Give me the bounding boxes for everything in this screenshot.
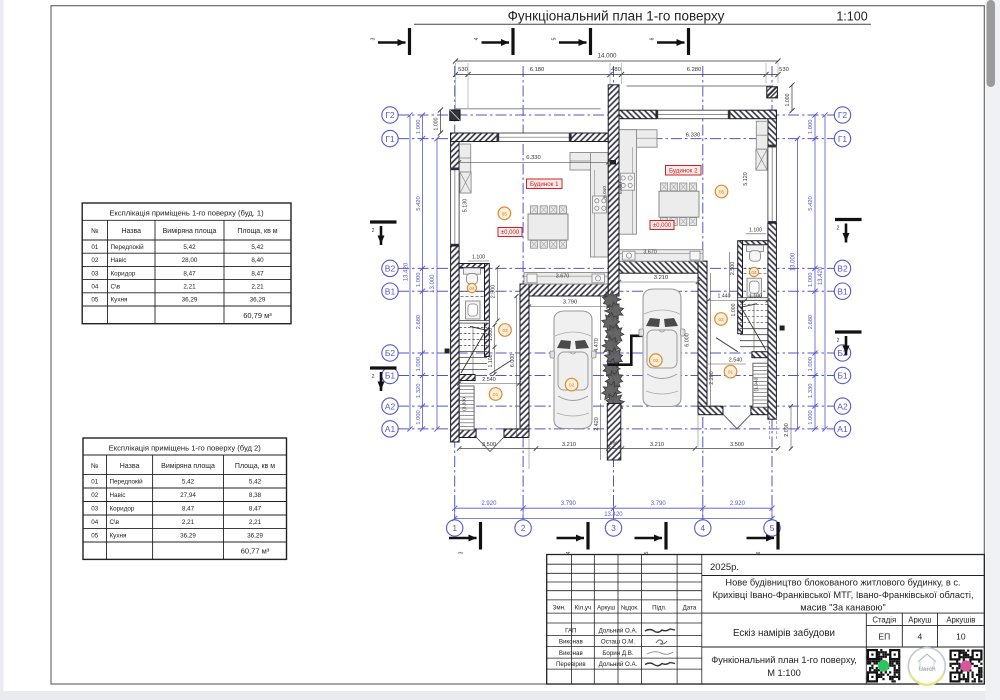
svg-text:05: 05 <box>719 190 725 196</box>
svg-text:2.920: 2.920 <box>730 501 746 507</box>
svg-text:14.000: 14.000 <box>598 53 617 60</box>
svg-text:1.100: 1.100 <box>472 255 485 261</box>
svg-text:С\в: С\в <box>110 519 120 526</box>
svg-text:2.540: 2.540 <box>729 358 743 364</box>
svg-text:1.000: 1.000 <box>808 410 814 425</box>
svg-text:2025р.: 2025р. <box>710 562 739 573</box>
svg-text:5.130: 5.130 <box>463 199 469 213</box>
svg-text:Назва: Назва <box>121 228 141 235</box>
svg-text:3: 3 <box>459 551 465 554</box>
svg-text:36,29: 36,29 <box>247 533 263 540</box>
svg-text:Аркушів: Аркушів <box>946 615 975 624</box>
svg-text:2.200: 2.200 <box>709 371 715 385</box>
svg-text:Г2: Г2 <box>385 110 395 120</box>
svg-text:3.210: 3.210 <box>650 442 664 448</box>
svg-text:6.000: 6.000 <box>510 354 516 368</box>
svg-text:2: 2 <box>372 374 375 380</box>
svg-text:8,47: 8,47 <box>183 270 196 277</box>
svg-text:Кухня: Кухня <box>110 533 127 540</box>
svg-text:Перевірив: Перевірив <box>556 661 586 668</box>
svg-text:5.420: 5.420 <box>416 196 422 211</box>
svg-text:2,21: 2,21 <box>251 284 264 291</box>
svg-text:3.670: 3.670 <box>643 250 657 256</box>
svg-text:1.100: 1.100 <box>749 294 762 300</box>
svg-text:6.330: 6.330 <box>526 155 541 161</box>
svg-text:1.000: 1.000 <box>731 303 737 316</box>
svg-text:6.040: 6.040 <box>618 182 624 194</box>
svg-text:8,47: 8,47 <box>251 270 264 277</box>
svg-text:Площа, кв м: Площа, кв м <box>235 463 275 470</box>
svg-text:Б1: Б1 <box>837 371 848 381</box>
svg-text:Б1: Б1 <box>385 371 396 381</box>
svg-text:Uarch: Uarch <box>918 666 936 673</box>
svg-text:60,79 м³: 60,79 м³ <box>243 311 272 320</box>
svg-text:1.100: 1.100 <box>749 228 762 234</box>
svg-text:6: 6 <box>650 37 656 40</box>
svg-text:Виміряна площа: Виміряна площа <box>163 227 217 235</box>
svg-text:Передпокій: Передпокій <box>110 478 144 486</box>
svg-text:02: 02 <box>91 492 99 499</box>
svg-text:6.000: 6.000 <box>685 333 691 347</box>
svg-text:Нове будівництво блокованого ж: Нове будівництво блокованого житлового б… <box>725 578 960 588</box>
svg-text:1.330: 1.330 <box>808 384 814 399</box>
svg-text:8,47: 8,47 <box>182 506 195 513</box>
svg-text:02: 02 <box>569 383 575 389</box>
svg-text:04: 04 <box>91 284 99 291</box>
svg-text:Експлікація приміщень 1-го пов: Експлікація приміщень 1-го поверху (буд … <box>109 444 262 453</box>
svg-text:Змн.: Змн. <box>553 605 566 612</box>
svg-text:01: 01 <box>728 370 734 376</box>
svg-text:Дольний О.А.: Дольний О.А. <box>599 661 638 668</box>
svg-text:Кухня: Кухня <box>111 297 128 304</box>
svg-text:Кіл.уч: Кіл.уч <box>575 605 592 612</box>
svg-text:2.090: 2.090 <box>784 423 790 437</box>
svg-text:2,21: 2,21 <box>183 284 196 291</box>
svg-text:3.500: 3.500 <box>482 442 496 448</box>
svg-text:3.790: 3.790 <box>561 501 577 507</box>
svg-text:03: 03 <box>502 328 508 334</box>
svg-text:13.420: 13.420 <box>818 266 824 285</box>
svg-text:5.120: 5.120 <box>743 172 749 186</box>
svg-text:2: 2 <box>837 226 840 232</box>
svg-text:1.000: 1.000 <box>416 410 422 425</box>
svg-text:Навіс: Навіс <box>111 256 127 264</box>
svg-text:36,29: 36,29 <box>182 297 198 304</box>
svg-text:4: 4 <box>700 523 705 533</box>
svg-text:(3.300: (3.300 <box>461 397 467 411</box>
svg-text:2: 2 <box>372 228 375 234</box>
svg-text:10: 10 <box>956 632 966 642</box>
svg-text:1:100: 1:100 <box>836 10 867 24</box>
svg-text:8,38: 8,38 <box>249 492 262 499</box>
svg-text:1.000: 1.000 <box>416 273 422 288</box>
svg-text:Будинок 2: Будинок 2 <box>669 168 698 175</box>
svg-text:Передпокій: Передпокій <box>111 243 145 251</box>
svg-text:Коридор: Коридор <box>111 270 136 277</box>
svg-text:А1: А1 <box>385 424 396 434</box>
svg-text:6.180: 6.180 <box>530 67 545 73</box>
svg-text:01: 01 <box>91 244 99 251</box>
svg-text:Площа, кв м: Площа, кв м <box>237 228 277 235</box>
svg-text:03: 03 <box>91 270 99 277</box>
svg-text:3.670: 3.670 <box>556 274 570 280</box>
svg-text:Підп.: Підп. <box>652 605 667 612</box>
svg-text:Виконав: Виконав <box>559 639 584 646</box>
svg-text:2.680: 2.680 <box>416 315 422 330</box>
svg-text:1.440: 1.440 <box>718 294 731 300</box>
svg-text:36,29: 36,29 <box>250 297 266 304</box>
svg-text:1: 1 <box>452 523 457 533</box>
svg-text:05: 05 <box>91 533 99 540</box>
svg-text:Б2: Б2 <box>385 348 396 358</box>
svg-text:27,94: 27,94 <box>180 492 196 499</box>
svg-text:масив "За канавою": масив "За канавою" <box>800 603 886 613</box>
svg-text:С\в: С\в <box>111 284 121 291</box>
svg-text:01: 01 <box>91 479 99 486</box>
svg-text:2.680: 2.680 <box>808 315 814 330</box>
svg-text:1.000: 1.000 <box>785 93 791 106</box>
svg-text:Виконав: Виконав <box>559 650 584 657</box>
svg-text:Ескіз намірів забудови: Ескіз намірів забудови <box>733 628 835 639</box>
svg-text:02: 02 <box>91 257 99 264</box>
svg-text:1.000: 1.000 <box>434 117 440 130</box>
svg-text:28,00: 28,00 <box>182 257 198 264</box>
svg-text:13.000: 13.000 <box>430 274 436 293</box>
svg-text:(1.940: (1.940 <box>754 377 760 391</box>
svg-text:1.000: 1.000 <box>808 273 814 288</box>
svg-text:5,42: 5,42 <box>249 479 262 486</box>
svg-text:±0,000: ±0,000 <box>653 223 672 229</box>
svg-text:1.000: 1.000 <box>416 120 422 135</box>
svg-text:530: 530 <box>458 67 468 73</box>
svg-text:Функіональний план 1-го поверх: Функіональний план 1-го поверху, <box>711 655 857 665</box>
svg-text:13.420: 13.420 <box>404 262 410 281</box>
svg-text:Функціональний план 1-го повер: Функціональний план 1-го поверху <box>508 9 725 24</box>
svg-text:Аркуш: Аркуш <box>908 615 931 624</box>
svg-text:04: 04 <box>91 519 99 526</box>
svg-text:36,29: 36,29 <box>180 533 196 540</box>
svg-text:2.540: 2.540 <box>482 377 496 383</box>
svg-text:3.500: 3.500 <box>730 442 744 448</box>
svg-text:Виміряна площа: Виміряна площа <box>161 462 215 470</box>
svg-text:6.330: 6.330 <box>686 133 701 139</box>
svg-text:1.000: 1.000 <box>808 120 814 135</box>
svg-text:Назва: Назва <box>120 463 140 470</box>
svg-text:480: 480 <box>611 67 621 73</box>
svg-text:Крихівці Івано-Франківської МТ: Крихівці Івано-Франківської МТГ, Івано-Ф… <box>712 590 973 600</box>
svg-text:№док.: №док. <box>621 605 639 612</box>
svg-text:580: 580 <box>610 441 618 447</box>
svg-text:5,42: 5,42 <box>183 244 196 251</box>
svg-text:60,77 м³: 60,77 м³ <box>241 547 270 556</box>
svg-text:3: 3 <box>611 523 616 533</box>
svg-text:В1: В1 <box>385 286 396 296</box>
svg-text:01: 01 <box>493 392 499 398</box>
svg-text:05: 05 <box>502 211 508 217</box>
svg-text:530: 530 <box>779 67 789 73</box>
svg-text:ЕП: ЕП <box>878 632 890 642</box>
svg-text:3: 3 <box>371 37 377 40</box>
svg-text:4: 4 <box>918 632 923 642</box>
svg-text:А1: А1 <box>837 424 848 434</box>
svg-text:М 1:100: М 1:100 <box>767 668 801 678</box>
svg-text:Г1: Г1 <box>385 134 395 144</box>
svg-text:4: 4 <box>474 37 480 40</box>
svg-text:2.920: 2.920 <box>481 501 497 507</box>
svg-text:Дата: Дата <box>683 605 697 612</box>
svg-text:А2: А2 <box>385 401 396 411</box>
svg-text:6.040: 6.040 <box>602 186 608 198</box>
svg-text:13.000: 13.000 <box>791 252 797 271</box>
svg-text:Коридор: Коридор <box>110 506 135 513</box>
svg-text:2,21: 2,21 <box>249 519 262 526</box>
svg-text:1.000: 1.000 <box>808 357 814 372</box>
svg-text:1.000: 1.000 <box>416 357 422 372</box>
svg-text:А2: А2 <box>837 401 848 411</box>
svg-text:±0,000: ±0,000 <box>501 230 520 236</box>
svg-text:2: 2 <box>837 338 840 344</box>
svg-text:5.420: 5.420 <box>808 196 814 211</box>
svg-text:04: 04 <box>469 286 475 292</box>
svg-text:3.790: 3.790 <box>563 300 578 306</box>
svg-text:5: 5 <box>552 37 558 40</box>
svg-text:Навіс: Навіс <box>110 491 126 499</box>
svg-text:Г1: Г1 <box>838 134 848 144</box>
svg-text:5: 5 <box>770 523 775 533</box>
svg-text:6.280: 6.280 <box>687 67 702 73</box>
svg-text:02: 02 <box>653 358 659 364</box>
svg-text:8,40: 8,40 <box>251 257 264 264</box>
svg-text:5,42: 5,42 <box>251 244 264 251</box>
svg-text:Експлікація приміщень 1-го пов: Експлікація приміщень 1-го поверху (буд.… <box>109 209 264 218</box>
svg-text:3.210: 3.210 <box>654 275 669 281</box>
svg-text:2.500: 2.500 <box>491 285 497 299</box>
svg-text:05: 05 <box>91 297 99 304</box>
svg-text:3.210: 3.210 <box>562 442 576 448</box>
svg-text:3.790: 3.790 <box>651 501 667 507</box>
svg-text:04: 04 <box>751 270 757 276</box>
svg-text:Аркуш: Аркуш <box>597 605 615 612</box>
svg-text:ГАП: ГАП <box>565 628 576 635</box>
svg-text:03: 03 <box>91 506 99 513</box>
svg-text:03: 03 <box>718 317 724 323</box>
svg-text:1.100: 1.100 <box>488 354 494 367</box>
svg-text:5,42: 5,42 <box>182 479 195 486</box>
svg-text:Г2: Г2 <box>838 110 848 120</box>
svg-text:4.470: 4.470 <box>594 338 600 352</box>
svg-text:2.500: 2.500 <box>730 262 736 276</box>
svg-text:Борин Д.В.: Борин Д.В. <box>602 650 634 657</box>
svg-text:2,21: 2,21 <box>182 519 195 526</box>
svg-text:В1: В1 <box>837 286 848 296</box>
svg-text:Дольний О.А.: Дольний О.А. <box>599 628 638 635</box>
svg-text:2: 2 <box>521 523 526 533</box>
svg-text:№: № <box>91 228 99 235</box>
svg-text:В2: В2 <box>837 264 848 274</box>
svg-text:Стадія: Стадія <box>872 615 896 624</box>
svg-text:Осташ О.М.: Осташ О.М. <box>601 639 635 646</box>
svg-text:8,47: 8,47 <box>249 506 262 513</box>
svg-text:Будинок 1: Будинок 1 <box>530 181 559 188</box>
svg-text:В2: В2 <box>385 264 396 274</box>
svg-text:1.320: 1.320 <box>416 384 422 399</box>
svg-text:2.420: 2.420 <box>594 417 600 431</box>
svg-text:1.000: 1.000 <box>488 328 494 341</box>
svg-text:№: № <box>91 463 99 470</box>
